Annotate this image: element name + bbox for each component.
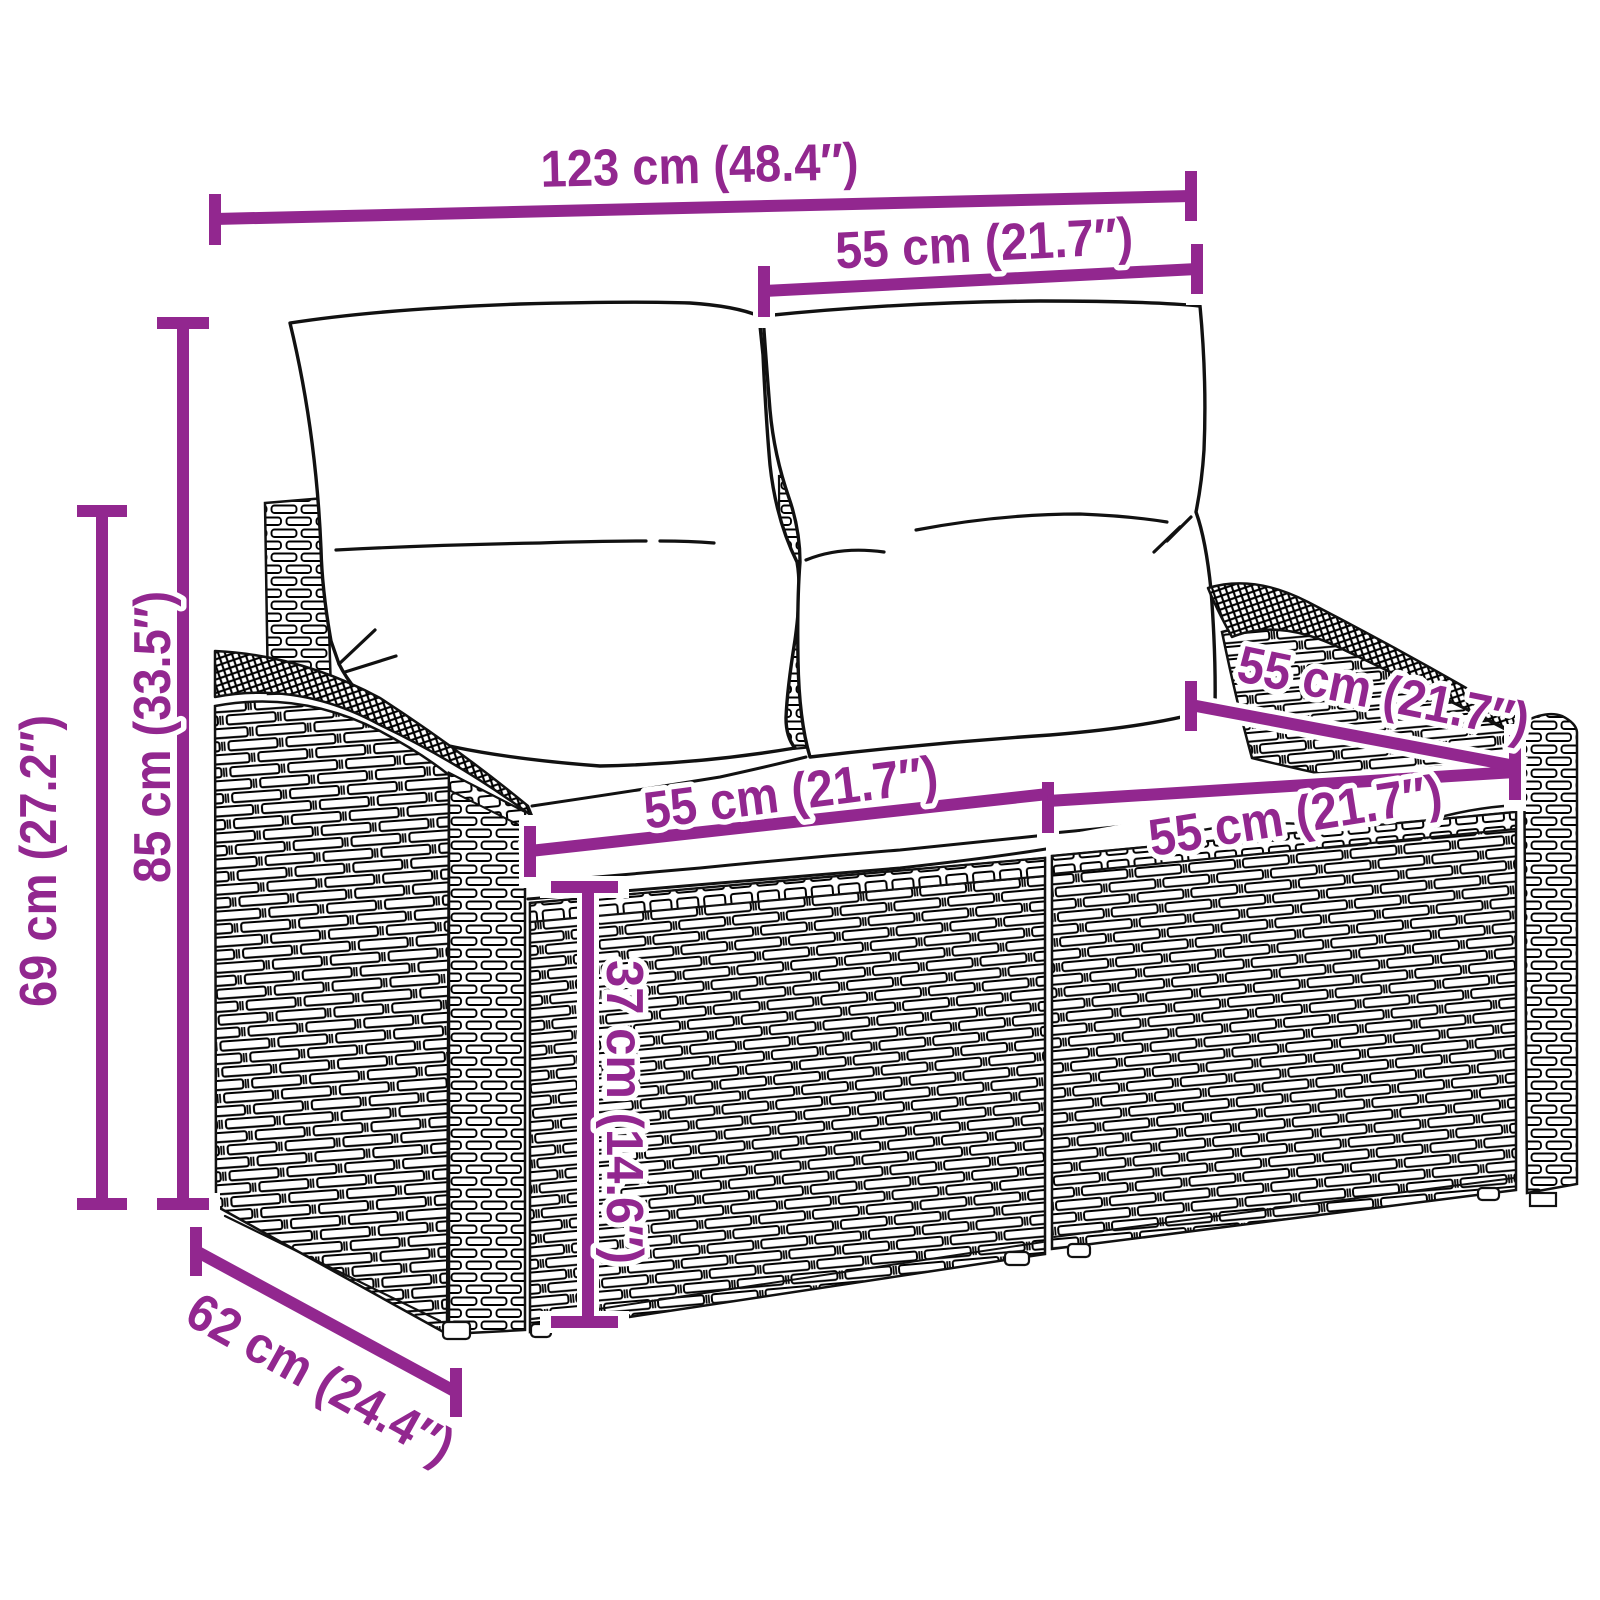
- svg-text:85 cm (33.5″): 85 cm (33.5″): [124, 591, 182, 883]
- svg-text:123 cm (48.4″): 123 cm (48.4″): [540, 133, 859, 199]
- svg-text:69 cm (27.2″): 69 cm (27.2″): [10, 715, 68, 1007]
- svg-text:37 cm (14.6″): 37 cm (14.6″): [595, 960, 653, 1264]
